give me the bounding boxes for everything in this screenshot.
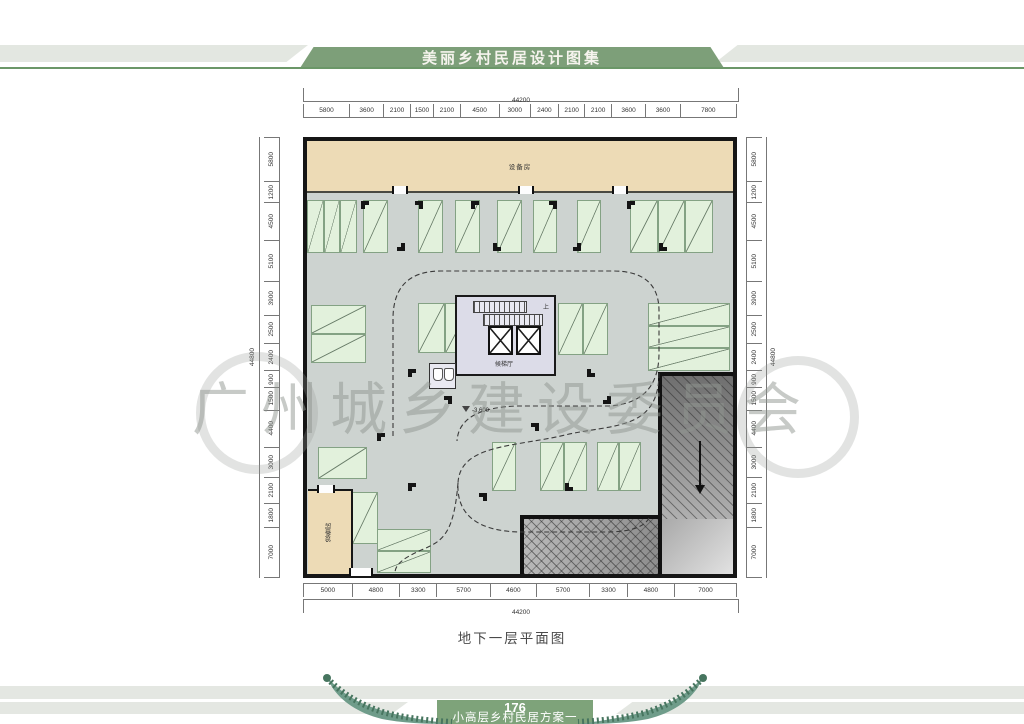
column-mark [471, 201, 479, 209]
stair-up-label: 上 [543, 302, 549, 311]
dimension-segment: 7000 [264, 528, 279, 578]
dimension-segment: 7800 [681, 104, 737, 117]
dimension-segment: 3600 [350, 104, 384, 117]
column-mark [603, 396, 611, 404]
floor-plan: 设备房 [303, 137, 737, 578]
dimension-segment: 5800 [264, 137, 279, 182]
dimension-segment: 2400 [747, 344, 762, 371]
dimension-segment: 1800 [747, 504, 762, 528]
dimension-segment: 2100 [434, 104, 460, 117]
dimension-segment: 3000 [264, 448, 279, 478]
elevator-shaft [488, 326, 513, 355]
footer-title-box: 176 小高层乡村民居方案一 [437, 700, 593, 724]
dimension-segment: 1200 [747, 182, 762, 203]
level-marker: -3.600 [462, 406, 489, 416]
column-mark [549, 201, 557, 209]
header-title-band: 美丽乡村民居设计图集 [300, 47, 724, 68]
level-triangle-icon [462, 406, 470, 416]
dimension-segment: 2100 [559, 104, 585, 117]
dimension-segment: 5800 [747, 137, 762, 182]
header-band-right [716, 45, 1024, 62]
column-mark [361, 201, 369, 209]
dimension-segment: 5700 [537, 584, 590, 597]
column-mark [659, 243, 667, 251]
dimension-segment: 5100 [264, 241, 279, 282]
page-title: 美丽乡村民居设计图集 [422, 47, 602, 68]
column-mark [377, 433, 385, 441]
dimension-segment: 900 [264, 371, 279, 387]
toilet-fixture [433, 368, 443, 381]
footer-subtitle: 小高层乡村民居方案一 [437, 713, 593, 724]
column-mark [415, 201, 423, 209]
stair-run [483, 314, 543, 326]
dimension-segment: 1500 [747, 388, 762, 411]
dimension-segment: 3000 [747, 448, 762, 478]
toilet-fixture [444, 368, 454, 381]
dimension-segment: 3900 [747, 282, 762, 317]
dimension-segment: 4600 [491, 584, 537, 597]
column-mark [479, 493, 487, 501]
equipment-room-left: 设备房 [308, 489, 353, 574]
dimension-segment: 2500 [747, 316, 762, 344]
roof-eave-ornament-left [322, 672, 454, 724]
dim-top-segments: 5800360021001500210045003000240021002100… [303, 104, 737, 118]
dimension-segment: 5700 [437, 584, 490, 597]
restroom [429, 363, 456, 389]
dim-bottom-overall: 44200 [303, 599, 739, 613]
dimension-segment: 900 [747, 371, 762, 387]
dimension-segment: 4500 [747, 203, 762, 241]
dimension-segment: 3900 [264, 282, 279, 317]
page: 美丽乡村民居设计图集 44200 58003600210015002100450… [0, 0, 1024, 724]
dimension-segment: 1200 [264, 182, 279, 203]
column-mark [531, 423, 539, 431]
dimension-segment: 3300 [590, 584, 627, 597]
dim-left-overall: 44800 [246, 137, 260, 578]
dimension-segment: 1800 [264, 504, 279, 528]
dimension-segment: 1500 [411, 104, 434, 117]
footer-band [0, 686, 1024, 699]
dimension-segment: 2100 [384, 104, 410, 117]
dimension-segment: 2100 [585, 104, 611, 117]
dimension-segment: 4500 [461, 104, 500, 117]
column-mark [444, 396, 452, 404]
column-mark [587, 369, 595, 377]
roof-eave-ornament-right [576, 672, 708, 724]
dim-left-segments: 5800120045005100390025002400900150044003… [264, 137, 280, 578]
dimension-segment: 2100 [747, 478, 762, 504]
header-rule [0, 67, 1024, 69]
dim-bottom-segments: 500048003300570046005700330048007000 [303, 583, 737, 597]
dimension-segment: 5100 [747, 241, 762, 282]
dim-right-overall: 44800 [766, 137, 780, 578]
column-mark [408, 369, 416, 377]
stair-run [473, 301, 527, 313]
dimension-segment: 3600 [612, 104, 646, 117]
door-opening [349, 568, 373, 576]
plan-caption: 地下一层平面图 [0, 627, 1024, 647]
dimension-segment: 2100 [264, 478, 279, 504]
dimension-segment: 2400 [264, 344, 279, 371]
dimension-segment: 5800 [303, 104, 350, 117]
elevator-stair-core: 上 候梯厅 [455, 295, 556, 376]
dimension-segment: 4400 [747, 411, 762, 448]
dim-top-overall: 44200 [303, 88, 739, 102]
lobby-label: 候梯厅 [495, 359, 513, 368]
column-mark [573, 243, 581, 251]
dim-right-segments: 5800120045005100390025002400900150044003… [746, 137, 762, 578]
dimension-segment: 3000 [500, 104, 531, 117]
dimension-segment: 7000 [675, 584, 737, 597]
column-mark [397, 243, 405, 251]
dimension-segment: 4800 [628, 584, 675, 597]
dimension-segment: 3600 [646, 104, 680, 117]
dimension-segment: 1500 [264, 388, 279, 411]
column-mark [565, 483, 573, 491]
dimension-segment: 4800 [353, 584, 400, 597]
dimension-segment: 2400 [531, 104, 559, 117]
column-mark [493, 243, 501, 251]
elevator-shaft [516, 326, 541, 355]
dimension-segment: 2500 [264, 316, 279, 344]
dimension-segment: 5000 [303, 584, 353, 597]
dimension-segment: 3300 [400, 584, 437, 597]
header-band-left [0, 45, 308, 62]
column-mark [627, 201, 635, 209]
dimension-segment: 4400 [264, 411, 279, 448]
column-mark [408, 483, 416, 491]
dimension-segment: 7000 [747, 528, 762, 578]
dimension-segment: 4500 [264, 203, 279, 241]
door-opening [317, 485, 335, 493]
